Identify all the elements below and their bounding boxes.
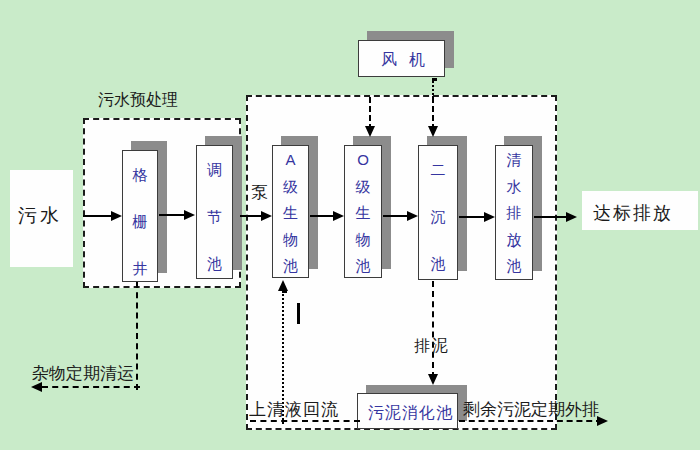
grid-well-label: 格栅井 <box>123 151 157 292</box>
flow-arrowhead-gridwell-regulating <box>184 210 195 220</box>
influent-label: 污水 <box>18 203 62 229</box>
tank-o: O级生物池 <box>344 145 382 278</box>
supernatant-return-label: 上清液回流 <box>249 398 339 421</box>
flow-arrowhead-influent <box>111 211 122 221</box>
air-arrowhead-tank-o <box>365 126 375 137</box>
flow-line-clearwater-discharge <box>534 216 567 218</box>
flow-arrowhead-clarifier-clearwater <box>484 212 495 222</box>
clearwater-discharge-tank-label: 清水排放池 <box>496 147 532 280</box>
clearwater-discharge-tank: 清水排放池 <box>495 145 533 280</box>
debris-removal-label: 杂物定期清运 <box>32 362 134 385</box>
debris-line-h <box>42 386 140 388</box>
sludge-discharge-line <box>432 281 434 378</box>
blower-label: 风机 <box>381 50 437 71</box>
regulating-tank-label: 调节池 <box>197 146 232 287</box>
pretreatment-label: 污水预处理 <box>98 90 178 111</box>
tick-mark <box>297 303 300 324</box>
flow-line-clarifier-clearwater <box>459 216 485 218</box>
discharge-box: 达标排放 <box>582 191 698 230</box>
regulating-tank: 调节池 <box>196 145 233 279</box>
flow-diagram: 污水预处理 污水 风机 格栅井 调节池 A级生物池 O级生物池 二沉池 清水排放… <box>0 0 700 450</box>
sludge-discharge-label: 排泥 <box>414 336 450 357</box>
tank-a: A级生物池 <box>272 145 309 278</box>
flow-arrowhead-tanka-tanko <box>333 211 344 221</box>
blower-box: 风机 <box>358 40 445 77</box>
tank-a-label: A级生物池 <box>273 147 308 280</box>
pump-label: 泵 <box>251 181 268 204</box>
flow-arrowhead-clearwater-discharge <box>566 212 577 222</box>
tank-o-label: O级生物池 <box>345 147 381 280</box>
influent-box: 污水 <box>10 170 73 267</box>
secondary-clarifier: 二沉池 <box>418 145 458 280</box>
flow-line-tanka-tanko <box>310 215 334 217</box>
discharge-label: 达标排放 <box>593 201 673 225</box>
flow-line-tanko-clarifier <box>383 215 408 217</box>
sludge-digestion-tank-label: 污泥消化池 <box>368 403 453 424</box>
debris-line-v <box>136 282 138 390</box>
blower-air-line <box>432 78 434 98</box>
grid-well: 格栅井 <box>122 150 158 282</box>
flow-line-pump-tanka <box>240 215 262 217</box>
flow-arrowhead-tanko-clarifier <box>407 211 418 221</box>
supernatant-return-arrowhead <box>278 280 288 291</box>
excess-sludge-label: 剩余污泥定期外排 <box>463 398 599 421</box>
air-arrowhead-secondary-clarifier <box>428 126 438 137</box>
flow-arrowhead-pump-tanka <box>261 211 272 221</box>
secondary-clarifier-label: 二沉池 <box>419 146 457 287</box>
flow-line-gridwell-regulating <box>159 214 185 216</box>
sludge-discharge-arrowhead <box>428 374 438 385</box>
sludge-digestion-tank: 污泥消化池 <box>357 393 458 429</box>
flow-line-influent <box>83 215 112 217</box>
